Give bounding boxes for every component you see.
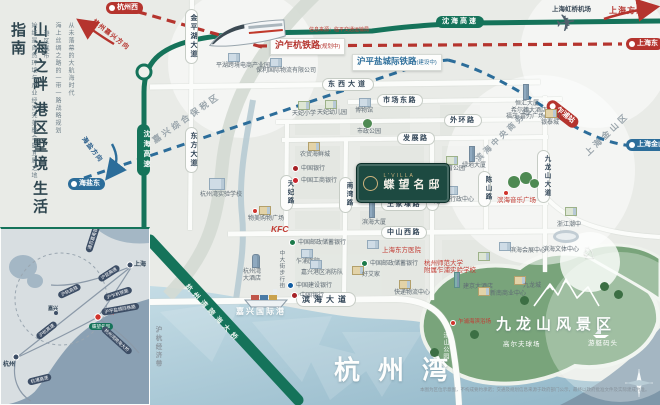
hupingyan-status: (建设中): [417, 60, 437, 66]
binhai-tower-icon: [369, 202, 375, 218]
lm-hsd-school: 杭州师范大学 附属乍浦实验学校: [424, 260, 476, 275]
hupingyan-railway-label: 沪平盐城际铁路(建设中): [352, 54, 442, 71]
hill-tree-icon: [600, 282, 609, 291]
logistics-center-icon: [399, 280, 411, 289]
hill-tree-icon: [520, 296, 529, 305]
primary-school-icon: [298, 101, 310, 110]
greenland-tower-icon: [469, 146, 475, 162]
road-dongxi: 东西大道: [322, 78, 374, 91]
lm-museum: 博物馆: [355, 108, 373, 115]
road-nanwan: 南湾路: [339, 177, 352, 213]
project-badge: L'VILLA 蝶望名邸: [356, 163, 450, 203]
hill-tree-icon: [614, 290, 623, 299]
shenhai-expressway-label-h: 沈海高速: [436, 16, 484, 28]
bank-of-china-icon: [292, 165, 299, 172]
music-square-tree-icon: [508, 176, 520, 188]
hsd-school-icon: [478, 252, 490, 261]
inset-city-jiaxing: 嘉兴: [48, 305, 58, 312]
inset-city-hangzhou: 杭州: [3, 359, 15, 368]
station-shanghaidong-label: 上海东: [637, 38, 658, 50]
station-haiyandong-label: 海盐东: [79, 178, 100, 190]
fire-station-icon: [310, 260, 322, 269]
lm-zhejiang-school: 浙江潮中: [557, 222, 581, 229]
hzw-hotel-icon: [252, 254, 260, 268]
station-jinshanwei: 上海金山卫: [626, 139, 660, 151]
lm-haoaijia: 好艾家: [362, 272, 380, 279]
zhejiang-school-icon: [565, 207, 577, 216]
logistics-building-icon: [270, 58, 282, 67]
xinnan-center-icon: [478, 287, 490, 296]
lm-baoli-logistics: 保利国际物流有限公司: [256, 68, 316, 75]
compass-icon: [624, 368, 654, 398]
lm-music-square: 滨海音乐广场: [497, 197, 536, 204]
inset-region-map: 上海 杭州 嘉兴 本案 蝶望名邸 沪杭高铁 通苏嘉甬铁路 沪昆高速 沪乍杭铁路 …: [0, 227, 150, 405]
intro-column-1: 从未落幕的大航海时代: [64, 22, 76, 97]
museum-icon: [359, 98, 371, 107]
road-chenshan: 陈山路: [478, 171, 491, 207]
hzw-hotel-line1: 杭州湾: [243, 269, 261, 276]
train-station-icon: [629, 41, 635, 47]
lm-hzw-school: 杭州湾实验学校: [200, 192, 242, 199]
kfc-logo: KFC: [271, 225, 288, 235]
bank-of-china-icon: [291, 292, 298, 299]
beach-pin-icon: [450, 320, 456, 326]
lm-boc: 中国银行: [301, 166, 325, 173]
lm-yintai: 银泰城: [541, 120, 559, 127]
lm-golf: 高尔夫球场: [503, 341, 541, 348]
lm-seafood: 农贸海鲜城: [300, 152, 330, 159]
train-station-icon: [629, 142, 635, 148]
hill-tree-icon: [430, 348, 439, 357]
road-waihuan: 外环路: [444, 114, 482, 127]
lm-binhai-tower: 滨海大厦: [362, 220, 386, 227]
lm-boc-2: 中国银行: [300, 293, 324, 300]
intro-column-3: 港区城市: [39, 30, 51, 60]
station-hangzhouxi-label: 杭州西: [117, 2, 138, 14]
kindergarten-icon: [325, 100, 337, 109]
lm-culture-center: 滨海文体中心: [543, 247, 579, 254]
music-square-pin-icon: [503, 190, 509, 196]
lm-hzw-hotel: 杭州湾 大酒店: [243, 269, 261, 283]
lm-yacht: 游艇码头: [588, 340, 618, 347]
lm-icbc: 中国工商银行: [301, 178, 337, 185]
jianjing-hotel-icon: [454, 272, 460, 288]
lm-beach: 乍浦海滨浴场: [458, 319, 491, 325]
school-campus-icon: [209, 178, 225, 190]
intro-column-2: 海上丝绸之路的一带一路战略规划: [51, 22, 63, 135]
airplane-icon: ✈: [554, 10, 578, 37]
music-square-tree-icon: [530, 179, 539, 188]
zhapu-hospital-icon: [301, 249, 313, 258]
station-shanghaidong: 上海东: [626, 38, 660, 50]
lm-logistics-center: 快递物流中心: [394, 290, 430, 297]
lm-tianfei-kindergarten: 天妃幼儿园: [317, 110, 347, 117]
hospital-icon: [367, 240, 379, 249]
hzw-hotel-line2: 大酒店: [243, 276, 261, 283]
lm-greenland: 绿地大厦: [462, 163, 486, 170]
road-dongfang: 东方大道: [185, 127, 198, 173]
lm-tianfei-primary: 天妃小学: [292, 111, 316, 118]
shenhai-expressway-label-v: 沈海高速: [137, 124, 150, 176]
wumei-pin-icon: [252, 208, 258, 214]
lm-jiulongcheng: 九龙城: [523, 283, 541, 290]
road-shichang: 市场东路: [377, 94, 423, 107]
lm-city-park: 市政公园: [357, 129, 381, 136]
lm-ccb: 中国建设银行: [296, 283, 332, 290]
huzhahang-railway: [128, 9, 622, 47]
yintai-icon: [545, 109, 557, 118]
stadium-icon: [553, 230, 579, 243]
cargo-ship-icon: [243, 288, 289, 308]
henghui-tower-icon: [523, 84, 529, 100]
huzhahang-status: (规划中): [320, 44, 340, 50]
inset-city-shanghai: 上海: [134, 259, 146, 268]
intro-column-4: 始终是自然环境与产业经济完美融合的宜居之地: [27, 22, 39, 180]
road-fazhan: 发展路: [397, 132, 435, 145]
hsd-school-line2: 附属乍浦实验学校: [424, 267, 476, 274]
seafood-market-icon: [308, 142, 320, 151]
lm-psbc-2: 中国邮政储蓄银行: [298, 240, 346, 247]
psbc-icon: [289, 239, 296, 246]
horse-statue-icon: ♘: [581, 244, 596, 261]
lm-henghui: 恒汇大厦: [515, 101, 539, 108]
station-hangzhouxi: 杭州西: [106, 2, 143, 14]
road-jiulongshan: 九龙山大道: [537, 150, 550, 203]
port-label: 嘉兴国际港: [236, 306, 286, 317]
location-map-poster: 山海之畔 港区墅境 生活指南 从未落幕的大航海时代 海上丝绸之路的一带一路战略规…: [0, 0, 660, 405]
lm-expo-center: 滨海会展中心: [510, 248, 546, 255]
inset-geography: [1, 229, 149, 404]
map-disclaimer: 本图为区位示意图，不构成要约承诺；交通及规划信息来源于政府部门公示，最终以政府批…: [420, 387, 650, 392]
lm-tangshan-park: 汤山公园: [441, 332, 448, 360]
high-speed-train-icon: [204, 12, 295, 56]
lm-fire-station: 嘉兴港区消防队: [301, 270, 343, 277]
hupingyan-name: 沪平盐城际铁路: [357, 56, 417, 66]
project-logo-icon: [363, 176, 378, 191]
mall-icon: [259, 206, 271, 215]
hill-tree-icon: [470, 330, 479, 339]
train-station-icon: [71, 181, 77, 187]
road-jinpinghu: 金平湖大道: [185, 9, 198, 64]
station-jinshanwei-label: 上海金山卫: [637, 139, 660, 151]
park-tree-icon: [363, 119, 372, 128]
lm-psbc: 中国邮政储蓄银行: [370, 261, 418, 268]
expressway-interchange: [137, 65, 151, 79]
train-station-icon: [109, 5, 115, 11]
icbc-icon: [292, 177, 299, 184]
industry-park-icon: [228, 53, 240, 62]
road-zhongshan: 中山西路: [381, 226, 427, 239]
yacht-icon: [592, 327, 610, 339]
zone-economic-belt: 沪杭经济带: [152, 326, 162, 369]
lm-wumei: 物美购物广场: [248, 216, 284, 223]
lm-shanghai-east-hospital: 上海东方医院: [382, 247, 421, 254]
direction-shanghai: 上海方向: [609, 5, 645, 16]
lm-walking-street: 中大街步行街: [278, 250, 284, 289]
project-name: 蝶望名邸: [384, 179, 444, 192]
station-haiyandong: 海盐东: [68, 178, 105, 190]
railway-source-note: 信息来源：临平交通运输局: [309, 28, 369, 34]
